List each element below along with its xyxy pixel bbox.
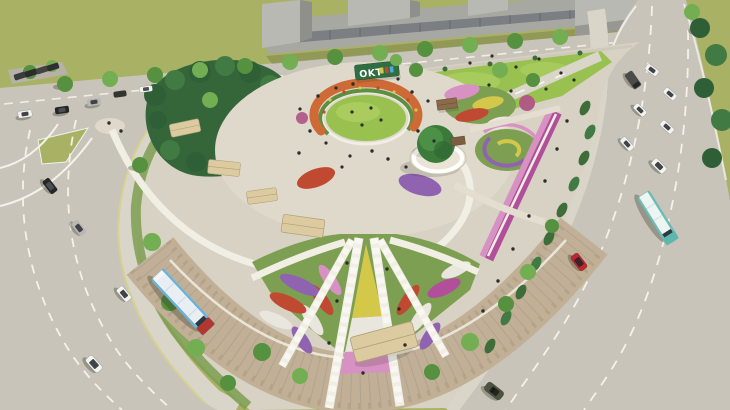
flowering-tree [296, 112, 308, 124]
building-tower-side [410, 0, 420, 18]
flowering-tree [519, 95, 535, 111]
sign-accent [390, 66, 394, 72]
sign-accent [380, 67, 384, 73]
sign-accent [385, 67, 389, 73]
render-canvas: OKT [0, 0, 730, 410]
building-tower [262, 0, 300, 48]
kiosk [451, 136, 466, 146]
park-rendering: OKT [0, 0, 730, 410]
building-tower-side [300, 0, 312, 42]
